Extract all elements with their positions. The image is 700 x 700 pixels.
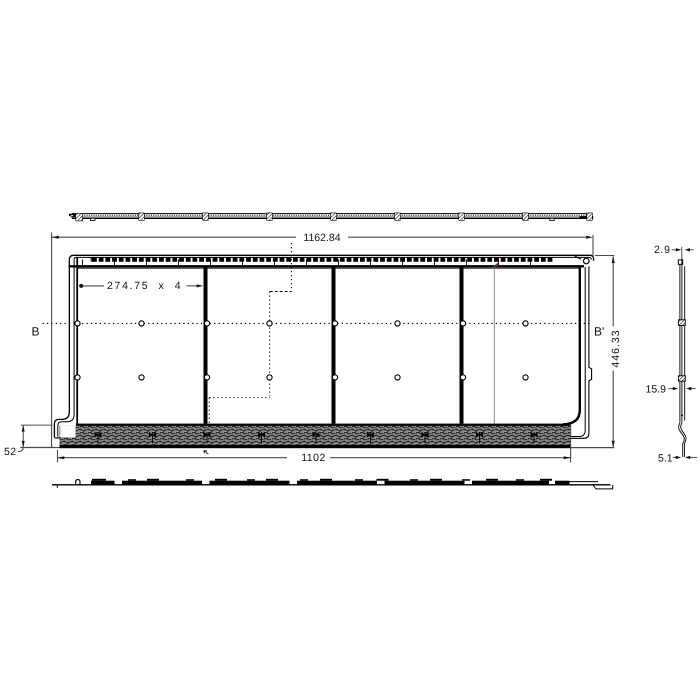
svg-text:1102: 1102 bbox=[301, 452, 326, 464]
svg-text:5.1: 5.1 bbox=[658, 452, 673, 464]
svg-text:B': B' bbox=[594, 325, 604, 339]
svg-text:446.33: 446.33 bbox=[610, 329, 622, 367]
svg-text:15.9: 15.9 bbox=[646, 383, 667, 395]
svg-text:274.75 x 4: 274.75 x 4 bbox=[107, 280, 182, 292]
svg-text:1162.84: 1162.84 bbox=[303, 232, 340, 244]
svg-text:2.9: 2.9 bbox=[654, 244, 671, 256]
svg-text:52: 52 bbox=[4, 446, 16, 458]
svg-text:B: B bbox=[32, 325, 40, 339]
